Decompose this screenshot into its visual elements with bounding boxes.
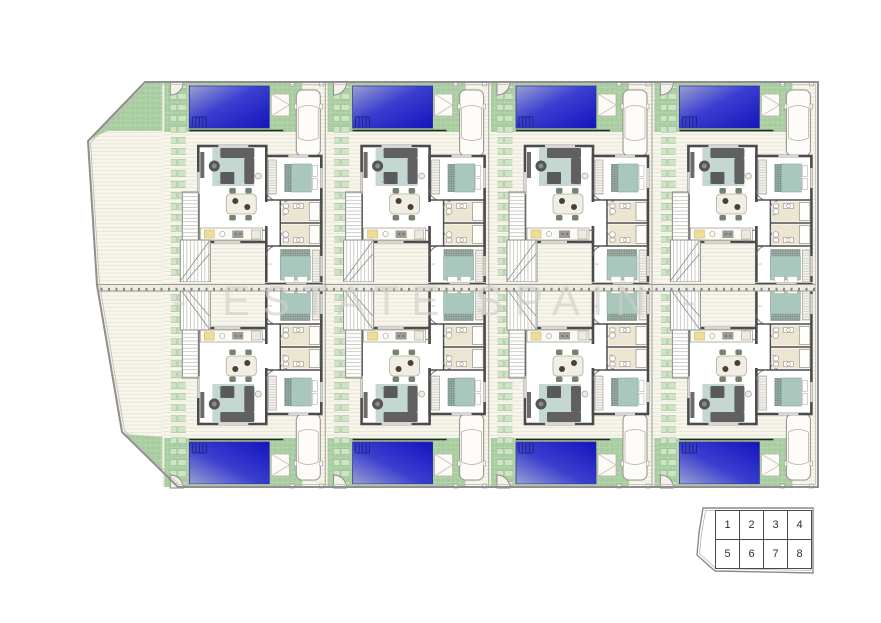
unit-6-plot [326, 282, 489, 488]
key-plan-cell-4: 4 [788, 511, 812, 540]
key-plan-cell-8: 8 [788, 540, 812, 569]
key-plan-cell-6: 6 [740, 540, 764, 569]
unit-7-plot [489, 282, 652, 488]
unit-3-plot [489, 82, 652, 288]
floorplan-page: m² m² m² - ESTATE SPAIN - 1 2 3 4 5 6 [0, 0, 881, 623]
unit-5-plot [162, 282, 325, 488]
key-plan: 1 2 3 4 5 6 7 8 [690, 505, 830, 585]
key-plan-cell-3: 3 [764, 511, 788, 540]
key-plan-grid: 1 2 3 4 5 6 7 8 [715, 510, 812, 569]
unit-2-plot [326, 82, 489, 288]
unit-4-plot [652, 82, 815, 288]
key-plan-cell-7: 7 [764, 540, 788, 569]
key-plan-cell-1: 1 [716, 511, 740, 540]
unit-8-plot [652, 282, 815, 488]
central-boundary-strip [98, 285, 816, 292]
key-plan-cell-2: 2 [740, 511, 764, 540]
key-plan-cell-5: 5 [716, 540, 740, 569]
unit-1-plot [162, 82, 325, 288]
